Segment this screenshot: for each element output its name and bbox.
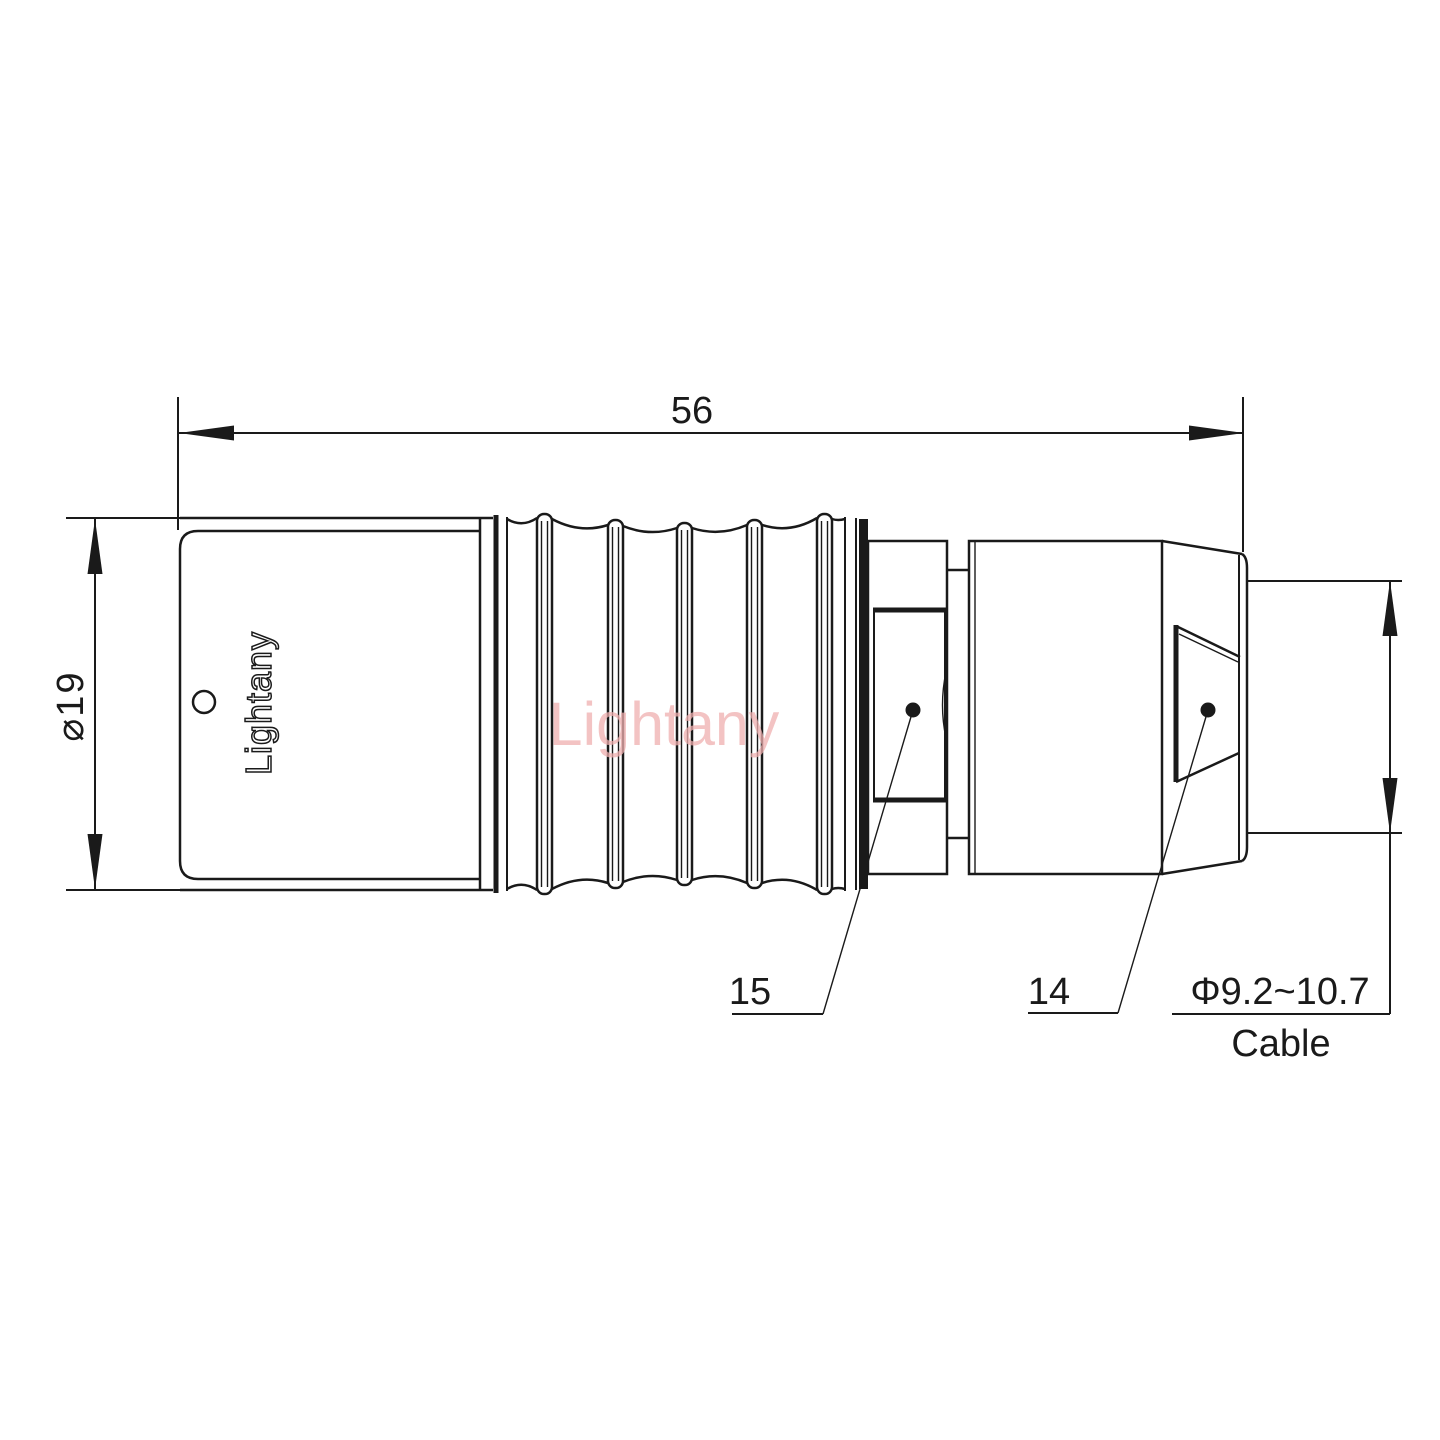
arrowhead-down (1383, 778, 1398, 833)
rib-outline (817, 514, 832, 894)
front-body: Lightany (180, 518, 493, 890)
part-label-15: 15 (729, 971, 771, 1013)
envelope-top-4 (692, 525, 747, 532)
callout-part-14: 14 (1028, 703, 1216, 1014)
cable-range-text: Φ9.2~10.7 (1190, 971, 1369, 1013)
envelope-top-5 (762, 518, 817, 528)
nut-outline (969, 541, 1162, 874)
envelope-bottom-5 (762, 880, 817, 890)
arrowhead-up (1383, 581, 1398, 636)
arrowhead-right (1189, 426, 1244, 441)
envelope-top-2 (552, 519, 608, 528)
neck-section (947, 570, 969, 838)
nut-chamfer-top (1162, 541, 1242, 554)
envelope-bottom-2 (552, 880, 608, 889)
envelope-top-1 (507, 518, 537, 523)
envelope-top-3 (623, 526, 677, 532)
grip-rib-5 (817, 514, 832, 894)
envelope-bottom-6 (832, 888, 845, 889)
bellows-right-shadow-band (859, 519, 868, 889)
watermark-text: Lightany (549, 690, 780, 758)
part-label-14: 14 (1028, 971, 1070, 1013)
dimension-value-diameter: ⌀19 (50, 670, 92, 741)
connector-drawing: 56 ⌀19 Lightany (0, 0, 1440, 1440)
drawing-canvas: 56 ⌀19 Lightany (0, 0, 1440, 1440)
arrowhead-up (88, 519, 103, 574)
front-cap-outline (180, 531, 480, 879)
cable-hole-top-slant-inner (1179, 634, 1238, 662)
brand-engraving: Lightany (238, 631, 279, 775)
envelope-bottom-4 (692, 876, 747, 883)
envelope-bottom-3 (623, 876, 677, 882)
dimension-body-diameter: ⌀19 (50, 518, 180, 890)
arrowhead-down (88, 834, 103, 889)
callout-cable-diameter: Φ9.2~10.7 Cable (1172, 581, 1402, 1065)
envelope-bottom-1 (507, 885, 537, 890)
cable-hole-bottom-slant (1176, 753, 1239, 782)
dimension-overall-length: 56 (178, 390, 1244, 552)
cable-word-text: Cable (1231, 1023, 1330, 1065)
cable-end-face-outer (1242, 554, 1247, 861)
front-cap-hole (193, 691, 215, 713)
nut-chamfer-bottom (1162, 861, 1242, 874)
arrowhead-left (179, 426, 234, 441)
dimension-value-56: 56 (671, 390, 713, 432)
envelope-top-6 (832, 519, 845, 520)
cable-hole-top-slant (1176, 626, 1240, 657)
